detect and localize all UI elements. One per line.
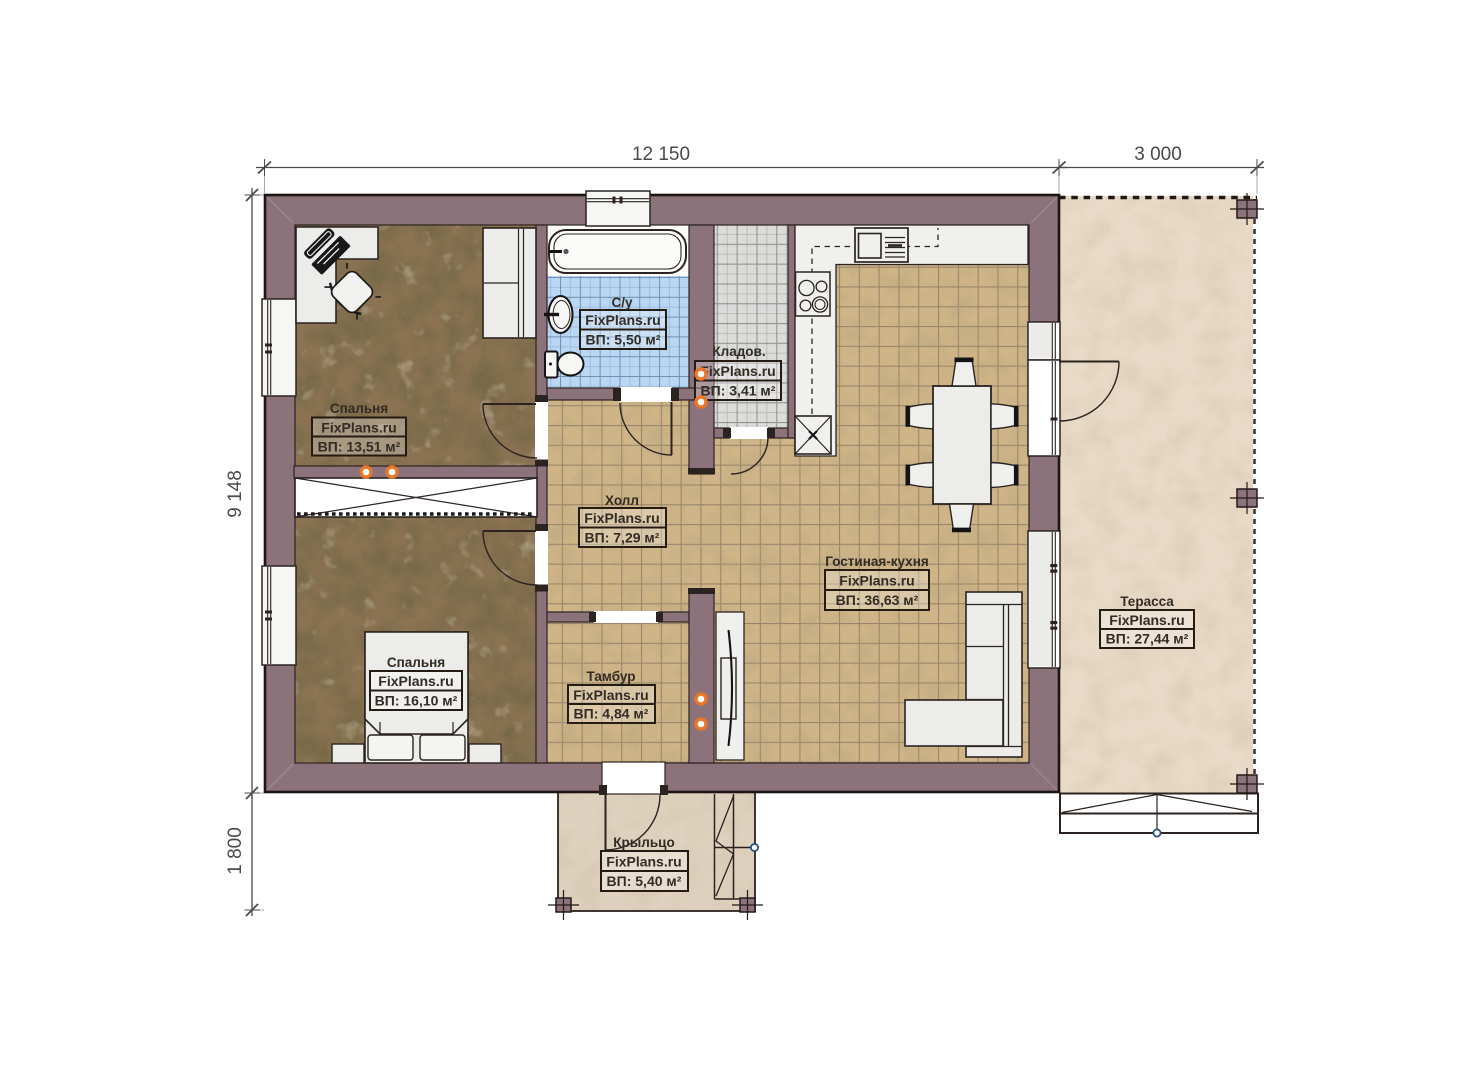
svg-text:ВП: 5,40 м²: ВП: 5,40 м² bbox=[607, 873, 682, 889]
svg-text:Терасса: Терасса bbox=[1120, 594, 1174, 609]
svg-text:FixPlans.ru: FixPlans.ru bbox=[573, 687, 648, 703]
svg-text:ВП: 7,29 м²: ВП: 7,29 м² bbox=[585, 530, 660, 546]
svg-text:12 150: 12 150 bbox=[632, 144, 690, 165]
svg-text:FixPlans.ru: FixPlans.ru bbox=[700, 363, 775, 379]
svg-text:Спальня: Спальня bbox=[330, 401, 388, 416]
svg-text:Гостиная-кухня: Гостиная-кухня bbox=[825, 554, 928, 569]
svg-text:Кладов.: Кладов. bbox=[712, 344, 765, 359]
svg-text:FixPlans.ru: FixPlans.ru bbox=[378, 673, 453, 689]
svg-text:С/у: С/у bbox=[611, 295, 633, 310]
svg-text:Тамбур: Тамбур bbox=[587, 669, 636, 684]
svg-text:3 000: 3 000 bbox=[1134, 144, 1182, 165]
svg-text:Холл: Холл bbox=[605, 493, 639, 508]
svg-text:FixPlans.ru: FixPlans.ru bbox=[839, 573, 914, 589]
svg-text:FixPlans.ru: FixPlans.ru bbox=[1109, 612, 1184, 628]
svg-text:FixPlans.ru: FixPlans.ru bbox=[606, 854, 681, 870]
svg-text:ВП: 3,41 м²: ВП: 3,41 м² bbox=[701, 383, 776, 399]
svg-text:Крыльцо: Крыльцо bbox=[613, 835, 674, 850]
svg-text:ВП: 4,84 м²: ВП: 4,84 м² bbox=[574, 706, 649, 722]
svg-text:Спальня: Спальня bbox=[387, 655, 445, 670]
svg-text:FixPlans.ru: FixPlans.ru bbox=[321, 420, 396, 436]
svg-text:FixPlans.ru: FixPlans.ru bbox=[584, 510, 659, 526]
svg-text:ВП: 13,51 м²: ВП: 13,51 м² bbox=[318, 439, 401, 455]
svg-text:ВП: 5,50 м²: ВП: 5,50 м² bbox=[586, 332, 661, 348]
svg-text:1 800: 1 800 bbox=[225, 827, 246, 875]
svg-text:FixPlans.ru: FixPlans.ru bbox=[585, 312, 660, 328]
svg-text:ВП: 27,44 м²: ВП: 27,44 м² bbox=[1106, 631, 1189, 647]
svg-text:ВП: 16,10 м²: ВП: 16,10 м² bbox=[375, 693, 458, 709]
svg-text:ВП: 36,63 м²: ВП: 36,63 м² bbox=[836, 592, 919, 608]
svg-text:9 148: 9 148 bbox=[225, 470, 246, 518]
